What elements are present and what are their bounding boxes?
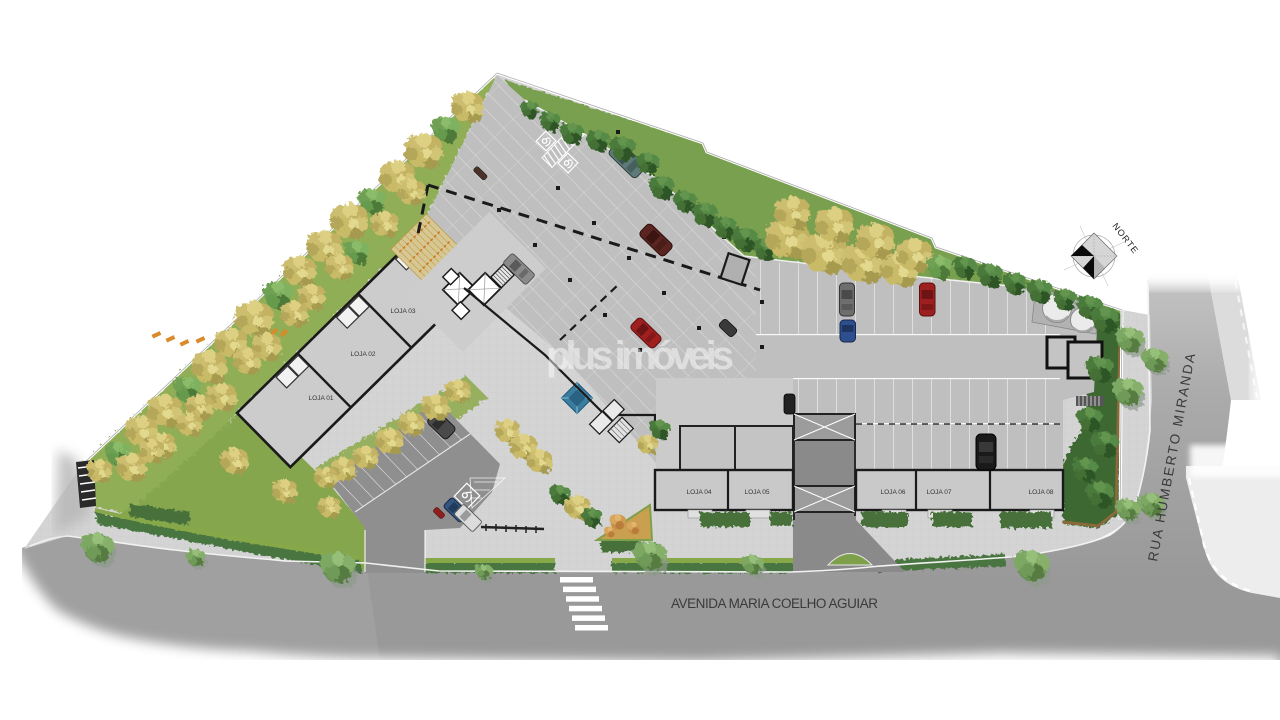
svg-text:AVENIDA MARIA COELHO AGUIAR: AVENIDA MARIA COELHO AGUIAR xyxy=(671,596,879,611)
svg-text:LOJA 05: LOJA 05 xyxy=(745,489,770,496)
svg-text:LOJA 08: LOJA 08 xyxy=(1029,489,1054,496)
svg-text:LOJA 04: LOJA 04 xyxy=(687,489,712,496)
svg-text:LOJA 03: LOJA 03 xyxy=(391,308,416,315)
svg-text:LOJA 02: LOJA 02 xyxy=(351,351,376,358)
svg-text:plus imóveis: plus imóveis xyxy=(546,334,734,378)
svg-text:LOJA 01: LOJA 01 xyxy=(309,395,334,402)
svg-text:LOJA 07: LOJA 07 xyxy=(927,489,952,496)
svg-text:LOJA 06: LOJA 06 xyxy=(881,489,906,496)
